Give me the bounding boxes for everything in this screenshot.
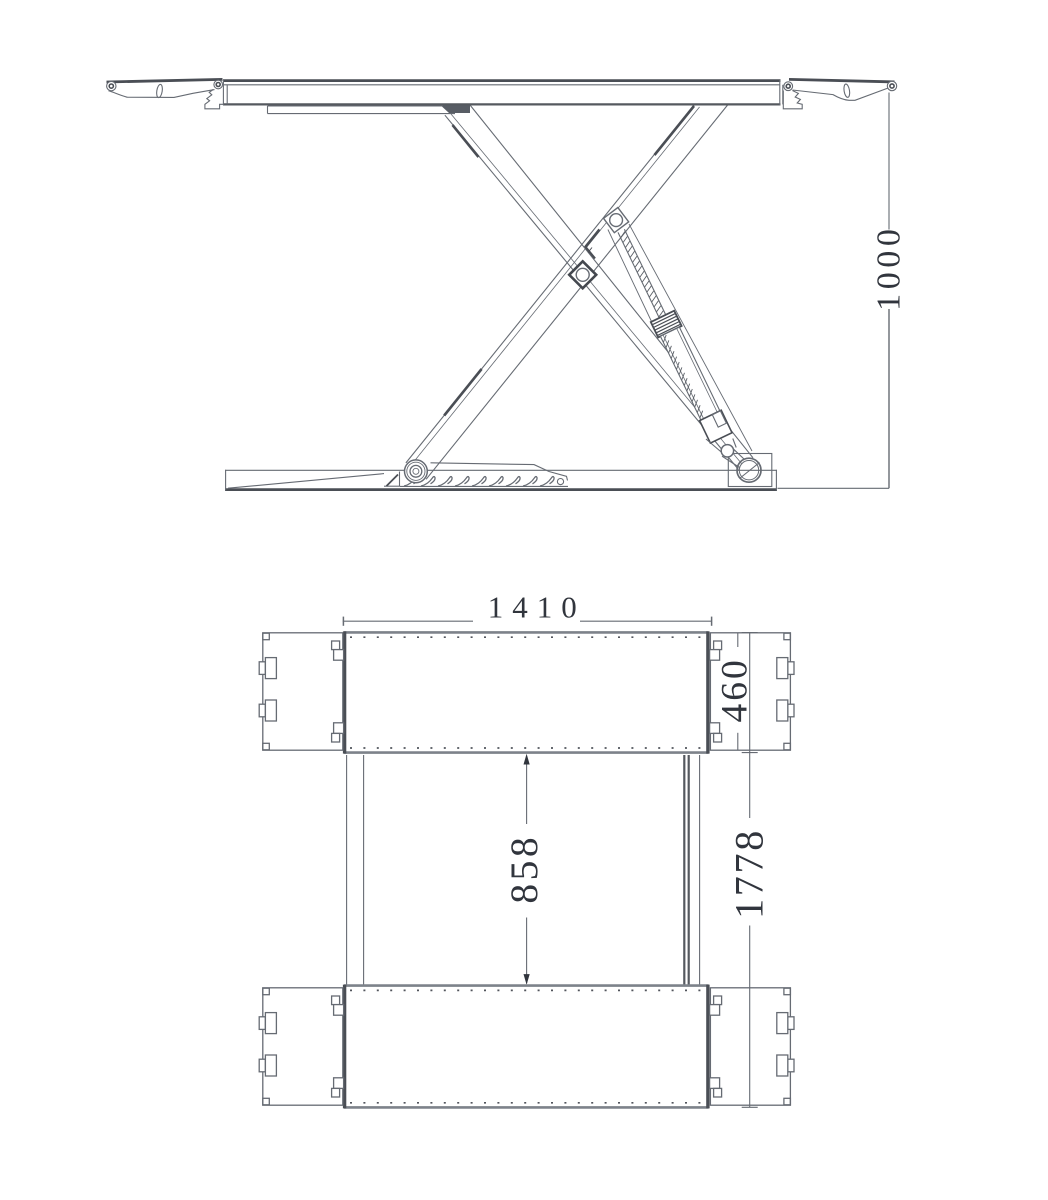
svg-text:1410: 1410 — [488, 590, 586, 625]
svg-text:1000: 1000 — [871, 224, 908, 310]
svg-text:460: 460 — [714, 657, 755, 722]
svg-text:858: 858 — [502, 834, 546, 904]
svg-text:1778: 1778 — [726, 828, 771, 919]
